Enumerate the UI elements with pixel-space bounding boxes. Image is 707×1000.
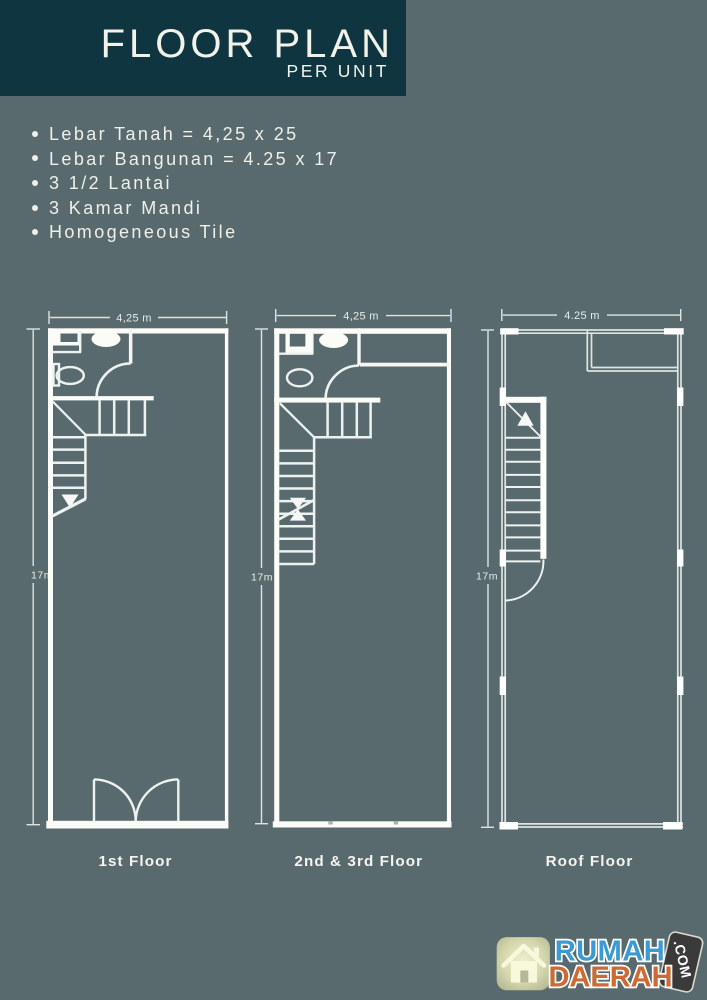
svg-text:17m: 17m — [476, 571, 498, 583]
svg-text:2nd & 3rd Floor: 2nd & 3rd Floor — [294, 853, 423, 870]
svg-text:4.25 m: 4.25 m — [564, 310, 599, 322]
svg-text:DAERAH: DAERAH — [548, 962, 672, 994]
svg-text:4,25 m: 4,25 m — [116, 313, 151, 325]
svg-text:Roof Floor: Roof Floor — [546, 853, 634, 870]
svg-text:17m: 17m — [251, 572, 273, 584]
svg-text:1st Floor: 1st Floor — [98, 853, 172, 870]
svg-text:4,25 m: 4,25 m — [343, 311, 378, 323]
